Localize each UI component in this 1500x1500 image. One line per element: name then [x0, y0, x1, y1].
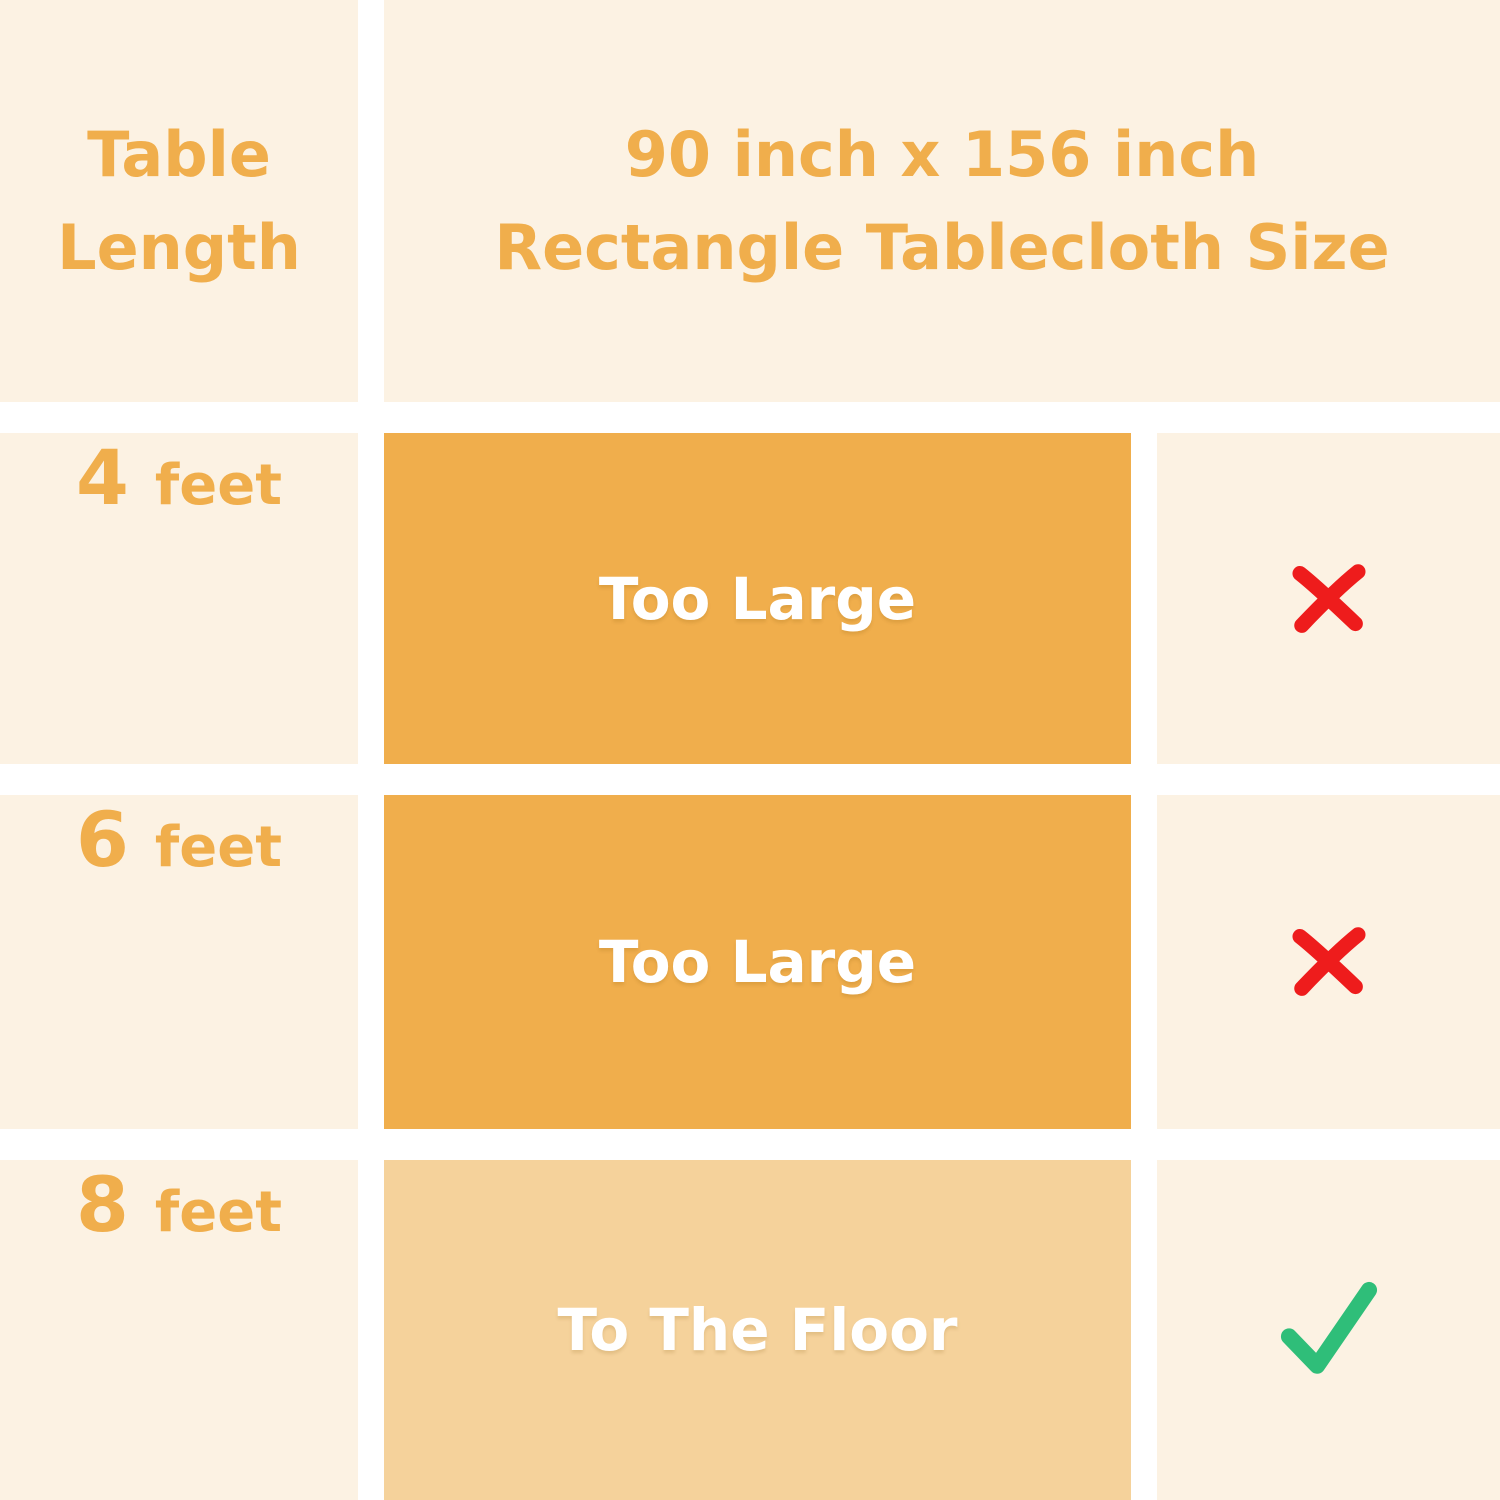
row-8ft-result — [1157, 1160, 1500, 1500]
row-8ft-label: 8 feet — [0, 1160, 358, 1500]
row-4ft-result — [1157, 433, 1500, 764]
row-8ft-length-unit: feet — [155, 1180, 282, 1245]
row-8ft-fit-label: To The Floor — [557, 1296, 957, 1364]
row-4ft-fit-label: Too Large — [599, 565, 916, 633]
header-table-length-line2: Length — [57, 201, 301, 294]
row-8ft-fit-box: To The Floor — [384, 1160, 1131, 1500]
header-table-length-line1: Table — [87, 108, 271, 201]
row-4ft-length-value: 4 — [76, 433, 129, 522]
tablecloth-size-chart: Table Length 90 inch x 156 inch Rectangl… — [0, 0, 1500, 1500]
row-6ft-length-unit: feet — [155, 815, 282, 880]
row-6ft-label: 6 feet — [0, 795, 358, 1129]
header-table-length: Table Length — [0, 0, 358, 402]
header-tablecloth-size: 90 inch x 156 inch Rectangle Tablecloth … — [384, 0, 1500, 402]
row-6ft-length-value: 6 — [76, 795, 129, 884]
header-size-line2: Rectangle Tablecloth Size — [494, 201, 1389, 294]
row-6ft-fit-box: Too Large — [384, 795, 1131, 1129]
row-4ft-fit-box: Too Large — [384, 433, 1131, 764]
header-size-line1: 90 inch x 156 inch — [625, 108, 1260, 201]
row-8ft-length-value: 8 — [76, 1160, 129, 1249]
x-mark-icon — [1283, 918, 1375, 1006]
x-mark-icon — [1283, 555, 1375, 643]
row-6ft-fit-label: Too Large — [599, 928, 916, 996]
check-mark-icon — [1273, 1276, 1385, 1384]
row-6ft-result — [1157, 795, 1500, 1129]
row-4ft-length-unit: feet — [155, 453, 282, 518]
row-4ft-label: 4 feet — [0, 433, 358, 764]
